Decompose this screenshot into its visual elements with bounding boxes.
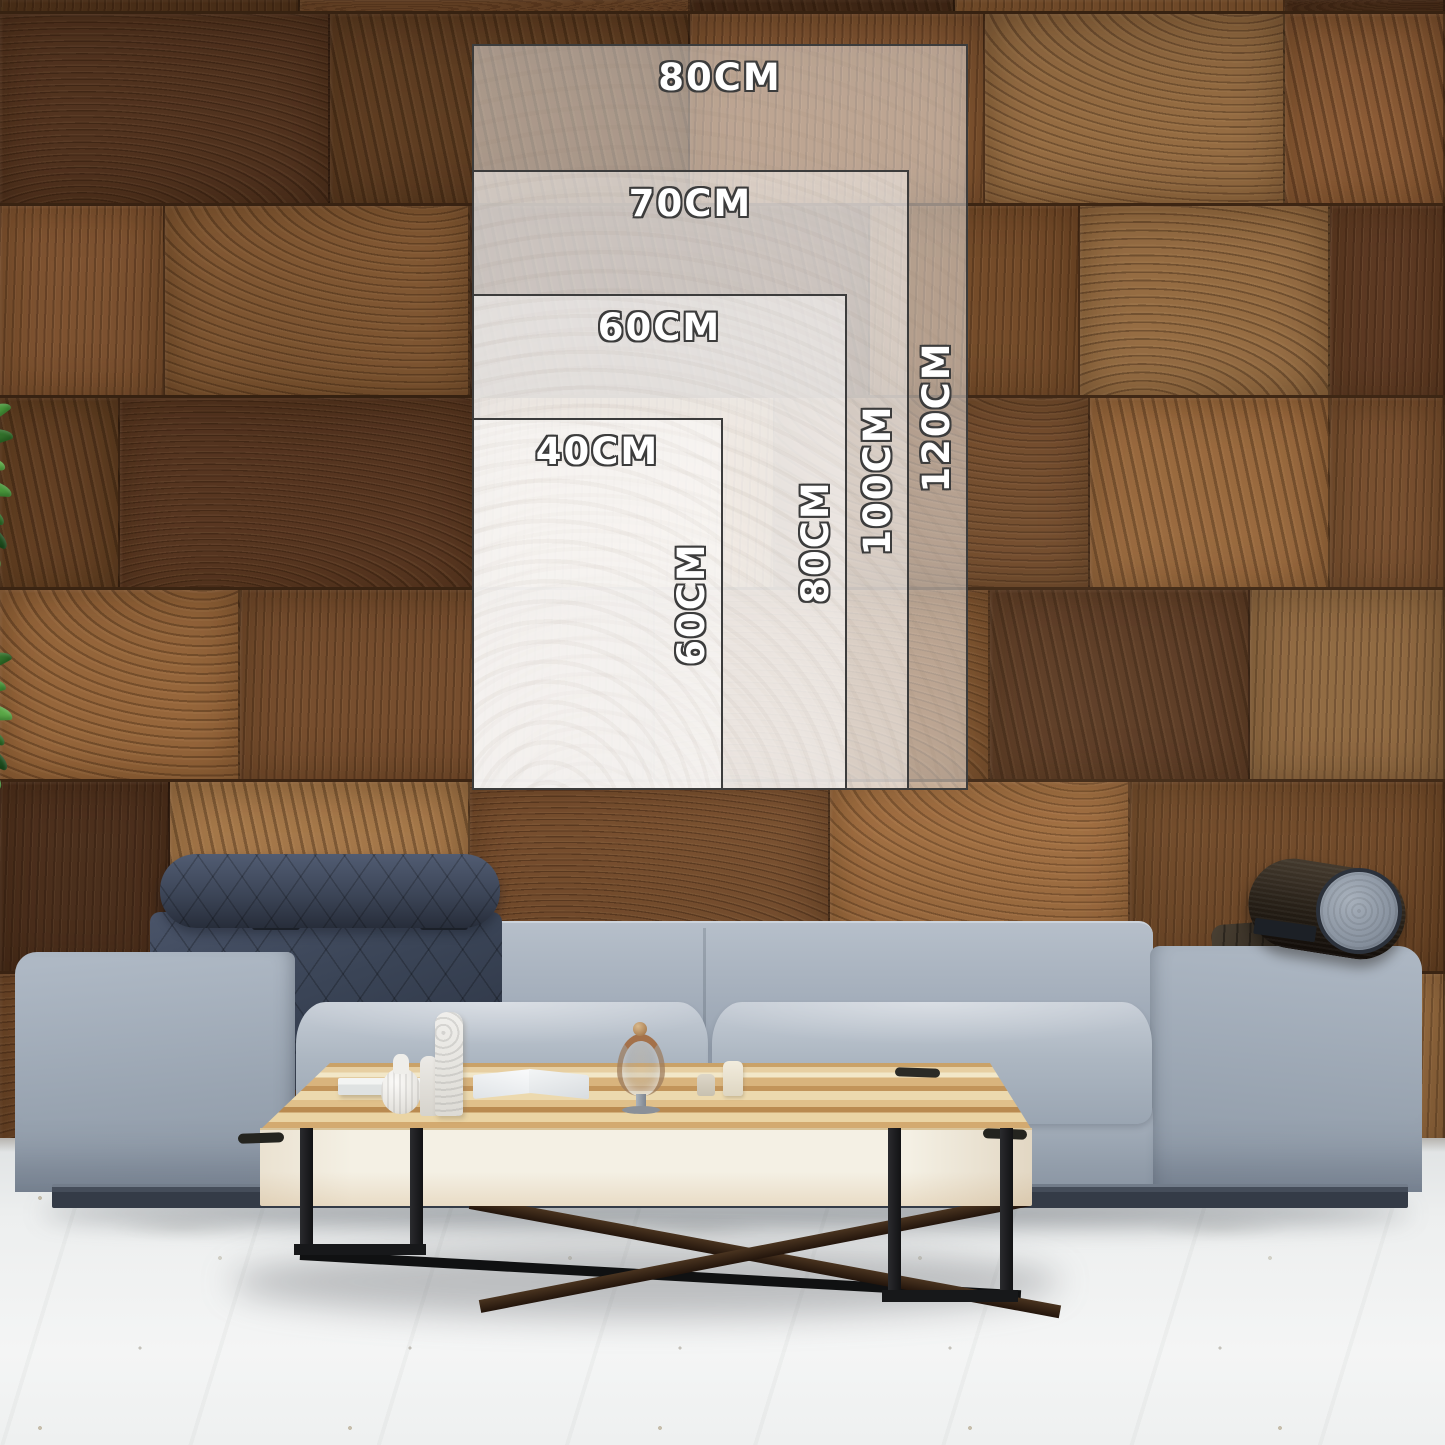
table-foot-rail-right — [882, 1290, 1018, 1302]
living-room-size-guide-mockup: 80CM 120CM 70CM 100CM 60CM 80CM 40CM 60C… — [0, 0, 1445, 1445]
gourd-vase-neck — [393, 1054, 409, 1074]
small-jar-beige — [697, 1074, 715, 1096]
table-handle-left — [238, 1132, 284, 1144]
table-leg-right — [888, 1128, 901, 1298]
bolster-end-cap — [1316, 868, 1402, 954]
sofa-right-armrest — [1150, 946, 1422, 1192]
size-height-label: 60CM — [670, 542, 713, 665]
table-leg-left — [410, 1128, 423, 1252]
marble-vase-tall — [435, 1012, 463, 1116]
size-height-label: 100CM — [856, 404, 899, 555]
book-page-left — [473, 1069, 531, 1099]
size-width-label: 80CM — [474, 56, 966, 99]
size-height-label: 80CM — [794, 480, 837, 603]
table-leg-left — [300, 1128, 313, 1252]
open-book — [473, 1068, 589, 1098]
size-width-label: 70CM — [474, 182, 907, 225]
cloche-knob — [633, 1022, 647, 1036]
book-page-right — [529, 1069, 589, 1099]
size-width-label: 60CM — [474, 306, 845, 349]
table-front-face — [260, 1128, 1032, 1206]
small-jar-cream — [723, 1061, 743, 1096]
table-top-cutout — [895, 1067, 940, 1078]
cloche-base — [622, 1106, 660, 1114]
size-width-label: 40CM — [474, 430, 721, 473]
gourd-vase — [381, 1068, 421, 1114]
size-rect-40x60: 40CM 60CM — [472, 418, 723, 790]
table-foot-rail-left — [294, 1244, 426, 1255]
table-leg-right — [1000, 1128, 1013, 1298]
size-height-label: 120CM — [915, 341, 958, 492]
quilted-headrest-roll — [160, 854, 500, 928]
sofa-left-armrest — [15, 952, 295, 1192]
